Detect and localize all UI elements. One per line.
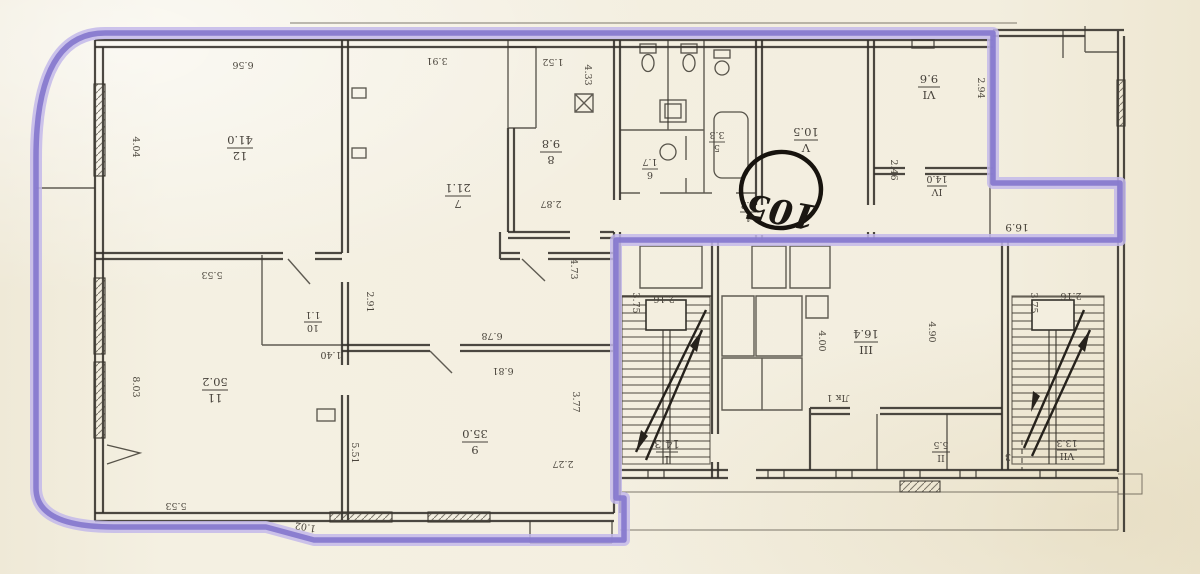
- room-number: 7: [454, 197, 461, 211]
- dim-label: 6.78: [481, 330, 502, 341]
- room-label-8: 8 9.8: [540, 137, 562, 167]
- window-icon: [900, 481, 940, 492]
- room-area: 21.1: [445, 181, 471, 195]
- room-label-10: 10 1.1: [304, 309, 322, 333]
- room-label-6: 6 1.7: [642, 156, 658, 180]
- scanned-floorplan-page: 12 41.0 7 21.1 8 9.8 11 50.2 10 1.1 9 35…: [0, 0, 1200, 574]
- room-area: 3.3: [709, 129, 724, 140]
- room-number: I: [665, 453, 670, 467]
- door-swing-icon: [107, 445, 140, 464]
- sink-icon: [660, 144, 676, 160]
- room-area: 1.7: [642, 156, 657, 167]
- room-label-9: 9 35.0: [462, 427, 488, 457]
- floor-plan-canvas: 12 41.0 7 21.1 8 9.8 11 50.2 10 1.1 9 35…: [0, 0, 1200, 574]
- dim-label: 4.33: [582, 64, 593, 85]
- dim-label: 5.51: [349, 442, 360, 463]
- room-number: VI: [923, 88, 937, 102]
- dim-label: 1.40: [320, 349, 341, 360]
- flue-icon: [352, 88, 366, 98]
- room-area: 10.5: [793, 125, 819, 139]
- room-number: IV: [932, 186, 943, 197]
- dim-label: 2.16: [1060, 290, 1081, 301]
- room-number: 8: [547, 153, 554, 167]
- dim-label: 6.81: [492, 365, 513, 376]
- toilet-icon: [642, 55, 654, 72]
- dim-label: 4.90: [926, 321, 937, 342]
- toilet-tank-icon: [681, 44, 697, 53]
- dim-label: 6.56: [232, 59, 253, 70]
- room-area: 9.8: [542, 137, 560, 151]
- room-area: 5.5: [933, 439, 948, 450]
- room-number: VII: [1060, 450, 1076, 461]
- dim-label: 3.91: [426, 55, 447, 66]
- dim-label: 2.94: [975, 77, 986, 98]
- room-area: 16.4: [853, 327, 879, 341]
- room-area: 13.3: [1056, 437, 1077, 448]
- dim-label: 3.77: [570, 391, 581, 412]
- dim-label: 3.75: [1028, 292, 1039, 313]
- room-number: 10: [307, 322, 319, 333]
- toilet-icon: [683, 55, 695, 72]
- window-icon: [1117, 80, 1125, 126]
- window-icon: [94, 278, 105, 354]
- dim-label: 2.16: [653, 293, 674, 304]
- room-number: 12: [233, 149, 248, 163]
- room-number: II: [937, 452, 945, 463]
- dim-label: 5.53: [201, 269, 222, 280]
- room-number: III: [859, 343, 873, 357]
- flue-icon: [352, 148, 366, 158]
- dim-label: 4.73: [568, 258, 579, 279]
- washbasin-icon: [660, 100, 686, 122]
- sink-shelf-icon: [714, 50, 730, 58]
- room-number: 11: [208, 391, 223, 405]
- dim-label: 3.75: [630, 292, 641, 313]
- apartment-number-stamp: 105: [736, 147, 826, 237]
- dim-label: 8.03: [130, 376, 141, 397]
- dim-label: 2.46: [888, 159, 899, 180]
- dim-label: 2.91: [364, 291, 375, 312]
- window-icon: [94, 362, 105, 438]
- sink-icon: [715, 61, 729, 75]
- stair-name-label: Лк 1: [827, 392, 850, 403]
- room-label-5: 5 3.3: [709, 129, 725, 153]
- window-icon: [94, 84, 105, 176]
- dim-label: 16.9: [1005, 221, 1028, 233]
- radiator-icon: [317, 409, 335, 421]
- room-number: 9: [471, 443, 478, 457]
- room-number: 6: [647, 169, 653, 180]
- room-number-label: 3: [1005, 451, 1011, 462]
- room-area: 9.6: [920, 72, 938, 86]
- room-label-7: 7 21.1: [445, 181, 471, 211]
- interior-walls-apartment: [95, 40, 993, 520]
- dim-label: 2.87: [540, 198, 561, 209]
- room-number: V: [801, 141, 811, 155]
- room-area: 14.3: [654, 437, 680, 451]
- dim-label: 1.52: [542, 56, 563, 67]
- dim-label: 4.04: [130, 136, 141, 157]
- exterior-walls: [36, 23, 1124, 543]
- room-label-V: V 10.5: [793, 125, 819, 155]
- room-label-VI: VI 9.6: [918, 72, 940, 102]
- room-area: 50.2: [202, 375, 228, 389]
- room-label-IV: IV 14.0: [926, 173, 947, 197]
- room-area: 35.0: [462, 427, 488, 441]
- room-area: 14.0: [926, 173, 947, 184]
- room-label-11: 11 50.2: [202, 375, 228, 405]
- dim-label: 4.00: [816, 330, 827, 351]
- room-area: 1.1: [305, 309, 320, 320]
- stamp-number: 105: [743, 185, 820, 237]
- window-icon: [330, 512, 392, 522]
- dim-label: 2.27: [552, 458, 573, 469]
- toilet-tank-icon: [640, 44, 656, 53]
- room-label-12: 12 41.0: [227, 133, 253, 163]
- window-icon: [428, 512, 490, 522]
- dim-label: 5.53: [165, 500, 186, 511]
- room-label-III: III 16.4: [853, 327, 879, 357]
- room-number: 5: [714, 142, 720, 153]
- room-area: 41.0: [227, 133, 253, 147]
